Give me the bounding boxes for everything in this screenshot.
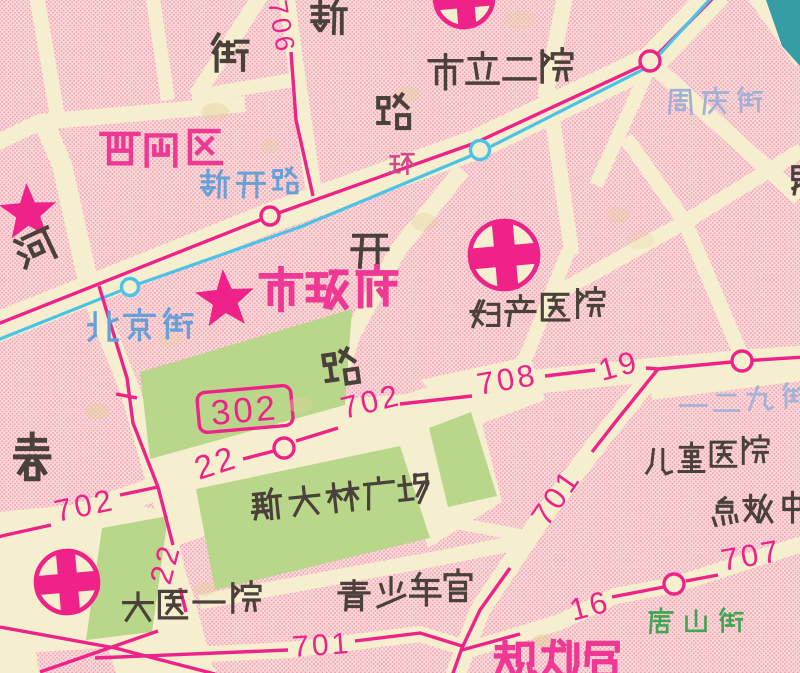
svg-text:302: 302 — [209, 388, 280, 433]
svg-text:701: 701 — [291, 627, 352, 664]
